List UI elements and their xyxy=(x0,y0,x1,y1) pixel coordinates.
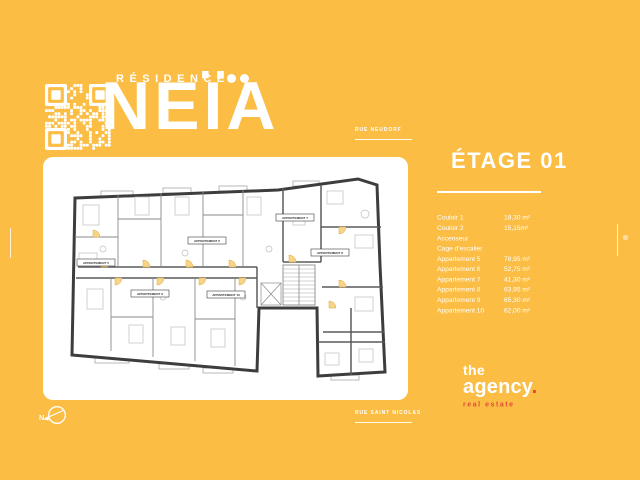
left-edge-tick xyxy=(10,228,11,258)
unit-label: APPARTEMENT 8 xyxy=(311,249,349,256)
list-item: Appartement 578,95 m² xyxy=(437,254,626,264)
list-item: Appartement 1062,00 m² xyxy=(437,306,626,316)
svg-text:APPARTEMENT 8: APPARTEMENT 8 xyxy=(317,251,343,255)
brochure-page: RÉSIDENCE NEÏA RUE NEUDORF xyxy=(0,0,640,480)
room-area: 18,30 m² xyxy=(504,213,530,223)
unit-label: APPARTEMENT 5 xyxy=(77,259,115,266)
floor-title: ÉTAGE 01 xyxy=(451,148,568,174)
floorplan-panel: APPARTEMENT 5 APPARTEMENT 6 APPARTEMENT … xyxy=(43,157,408,400)
agency-logo: the agency. real estate xyxy=(463,364,537,412)
svg-text:APPARTEMENT 7: APPARTEMENT 7 xyxy=(282,216,308,220)
floor-room-list: Couloir 118,30 m² Couloir 215,15m² Ascen… xyxy=(437,213,626,316)
svg-text:APPARTEMENT 9: APPARTEMENT 9 xyxy=(137,292,163,296)
title-divider xyxy=(437,191,541,193)
street-label-bottom: RUE SAINT NICOLAS xyxy=(355,410,421,416)
list-item: Couloir 215,15m² xyxy=(437,223,626,233)
street-underline-top xyxy=(355,139,412,140)
unit-label: APPARTEMENT 9 xyxy=(131,290,169,297)
floorplan-drawing: APPARTEMENT 5 APPARTEMENT 6 APPARTEMENT … xyxy=(43,157,408,400)
list-item: Ascenseur xyxy=(437,234,626,244)
room-label: Couloir 1 xyxy=(437,213,504,223)
list-item: Appartement 741,30 m² xyxy=(437,275,626,285)
street-underline-bottom xyxy=(355,422,412,423)
agency-tagline: real estate xyxy=(463,401,515,409)
svg-text:APPARTEMENT 6: APPARTEMENT 6 xyxy=(194,239,220,243)
room-label: Appartement 10 xyxy=(437,306,504,316)
compass: N xyxy=(36,401,72,434)
room-label: Cage d'escalier xyxy=(437,244,504,254)
unit-label: APPARTEMENT 10 xyxy=(207,291,245,298)
list-item: Appartement 863,95 m² xyxy=(437,285,626,295)
agency-logo-dot: . xyxy=(532,376,538,398)
list-item: Appartement 652,75 m² xyxy=(437,265,626,275)
room-area: 62,00 m² xyxy=(504,306,530,316)
room-label: Appartement 9 xyxy=(437,296,504,306)
agency-logo-word: agency xyxy=(463,376,532,398)
svg-text:APPARTEMENT 10: APPARTEMENT 10 xyxy=(212,293,240,297)
room-label: Appartement 5 xyxy=(437,254,504,264)
residence-name: NEÏA xyxy=(101,74,279,138)
room-area: 15,15m² xyxy=(504,223,528,233)
room-label: Appartement 8 xyxy=(437,285,504,295)
compass-north-icon: N xyxy=(36,401,72,429)
room-label: Couloir 2 xyxy=(437,223,504,233)
room-area: 65,30 m² xyxy=(504,296,530,306)
room-label: Ascenseur xyxy=(437,234,504,244)
list-item: Cage d'escalier xyxy=(437,244,626,254)
svg-text:N: N xyxy=(39,413,44,422)
room-area: 63,95 m² xyxy=(504,285,530,295)
svg-text:APPARTEMENT 5: APPARTEMENT 5 xyxy=(83,261,109,265)
room-label: Appartement 7 xyxy=(437,275,504,285)
room-area: 78,95 m² xyxy=(504,254,530,264)
street-label-top: RUE NEUDORF xyxy=(355,127,402,133)
room-area: 41,30 m² xyxy=(504,275,530,285)
agency-logo-line2: agency. xyxy=(463,377,537,397)
unit-label: APPARTEMENT 6 xyxy=(188,237,226,244)
list-item: Appartement 965,30 m² xyxy=(437,296,626,306)
unit-label: APPARTEMENT 7 xyxy=(276,214,314,221)
room-area: 52,75 m² xyxy=(504,265,530,275)
room-label: Appartement 6 xyxy=(437,265,504,275)
list-item: Couloir 118,30 m² xyxy=(437,213,626,223)
